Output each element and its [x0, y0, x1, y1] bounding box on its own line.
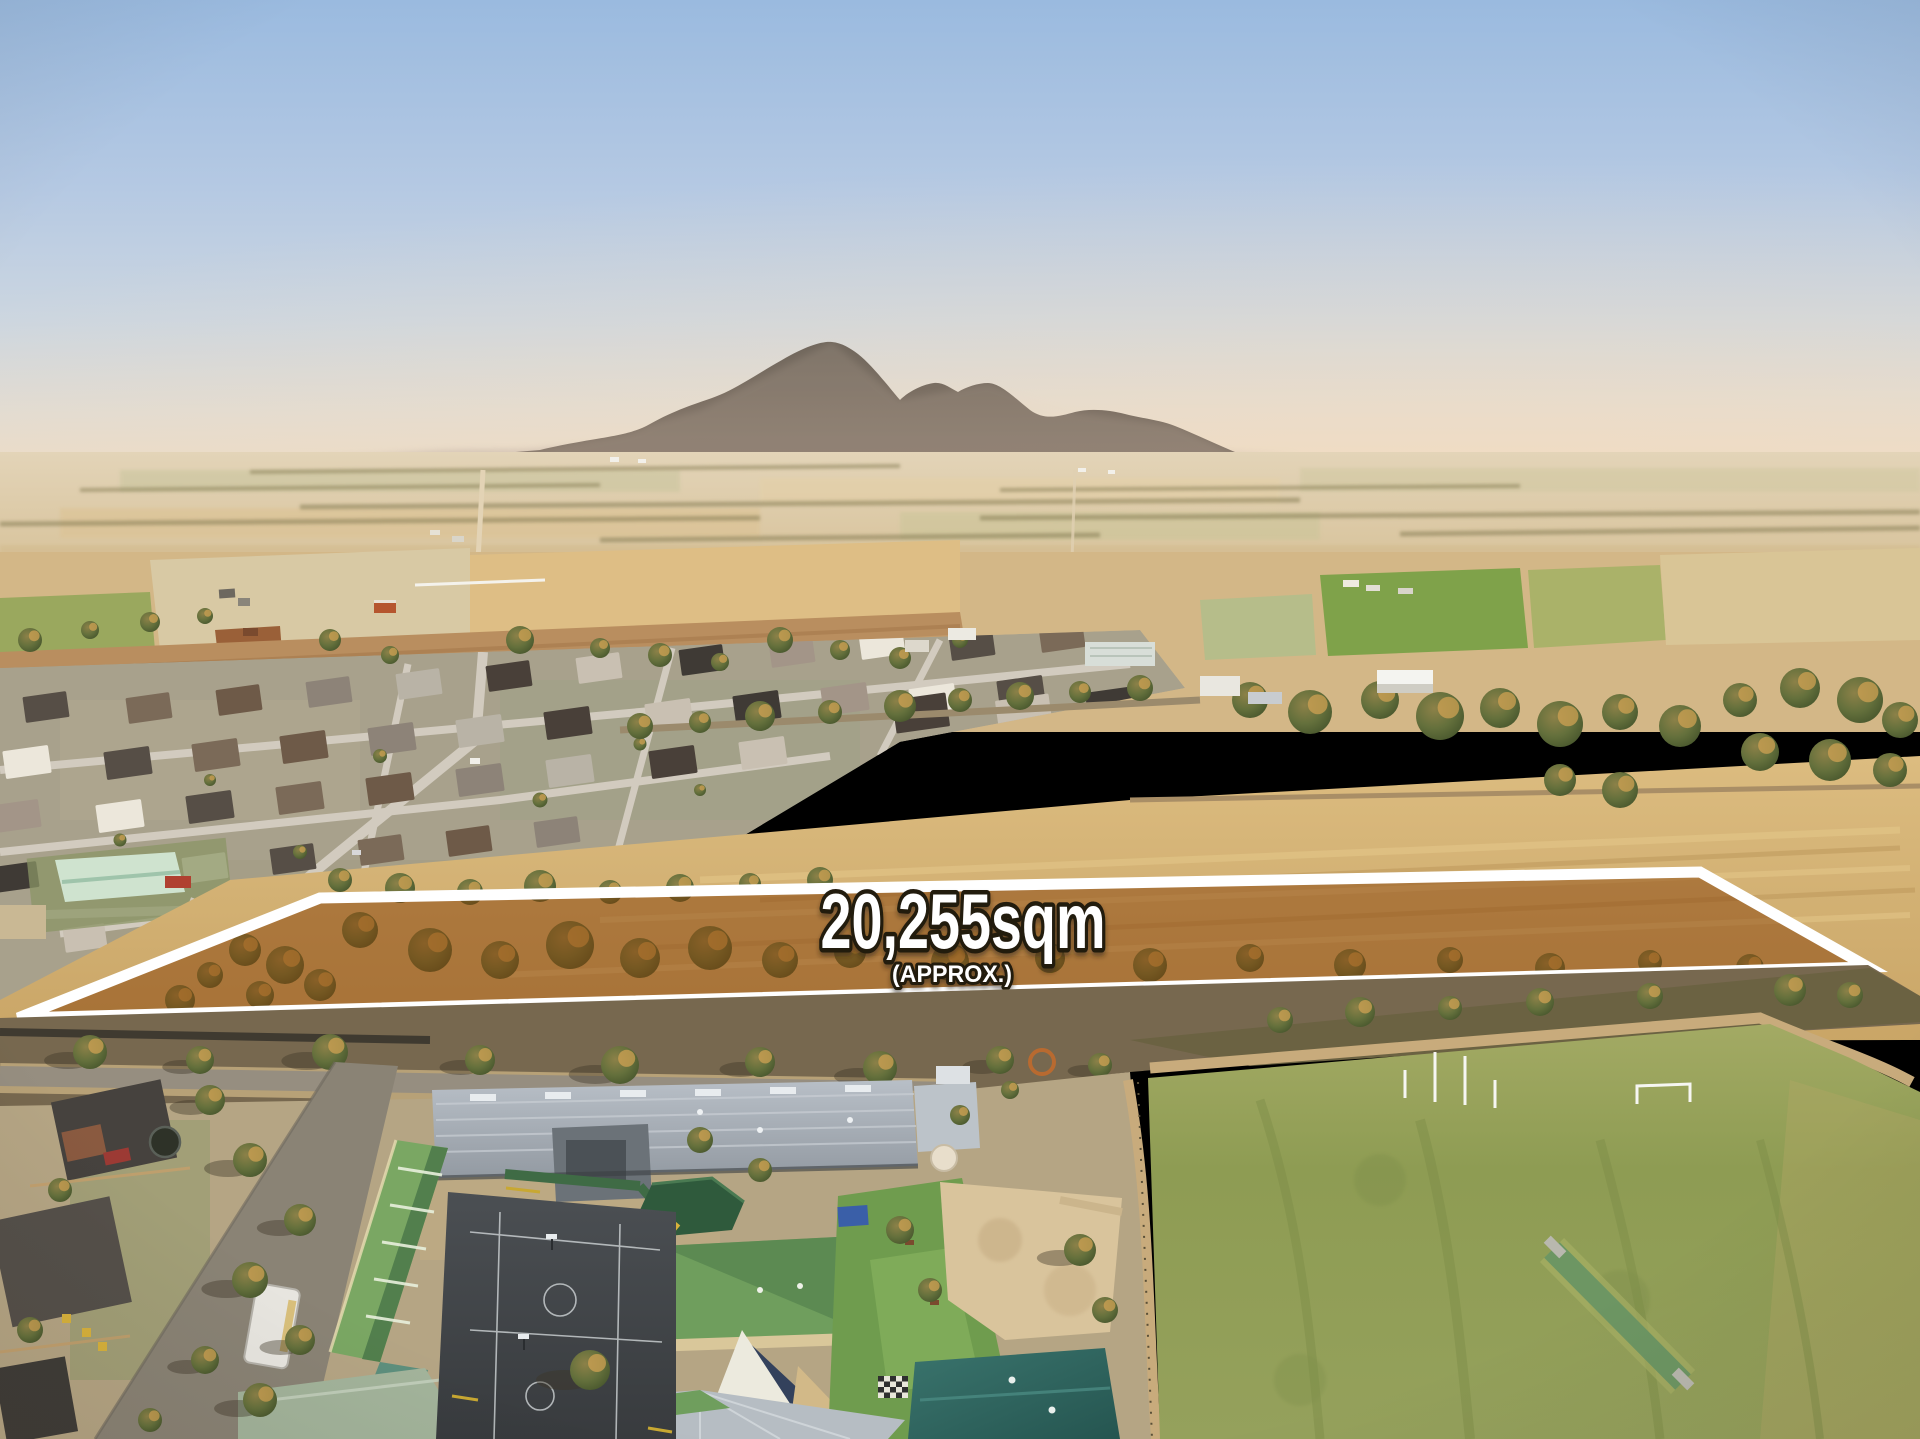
scene-canvas: 20,255sqm (APPROX.)	[0, 0, 1920, 1439]
vignette	[0, 0, 1920, 1439]
aerial-photo: 20,255sqm (APPROX.)	[0, 0, 1920, 1439]
